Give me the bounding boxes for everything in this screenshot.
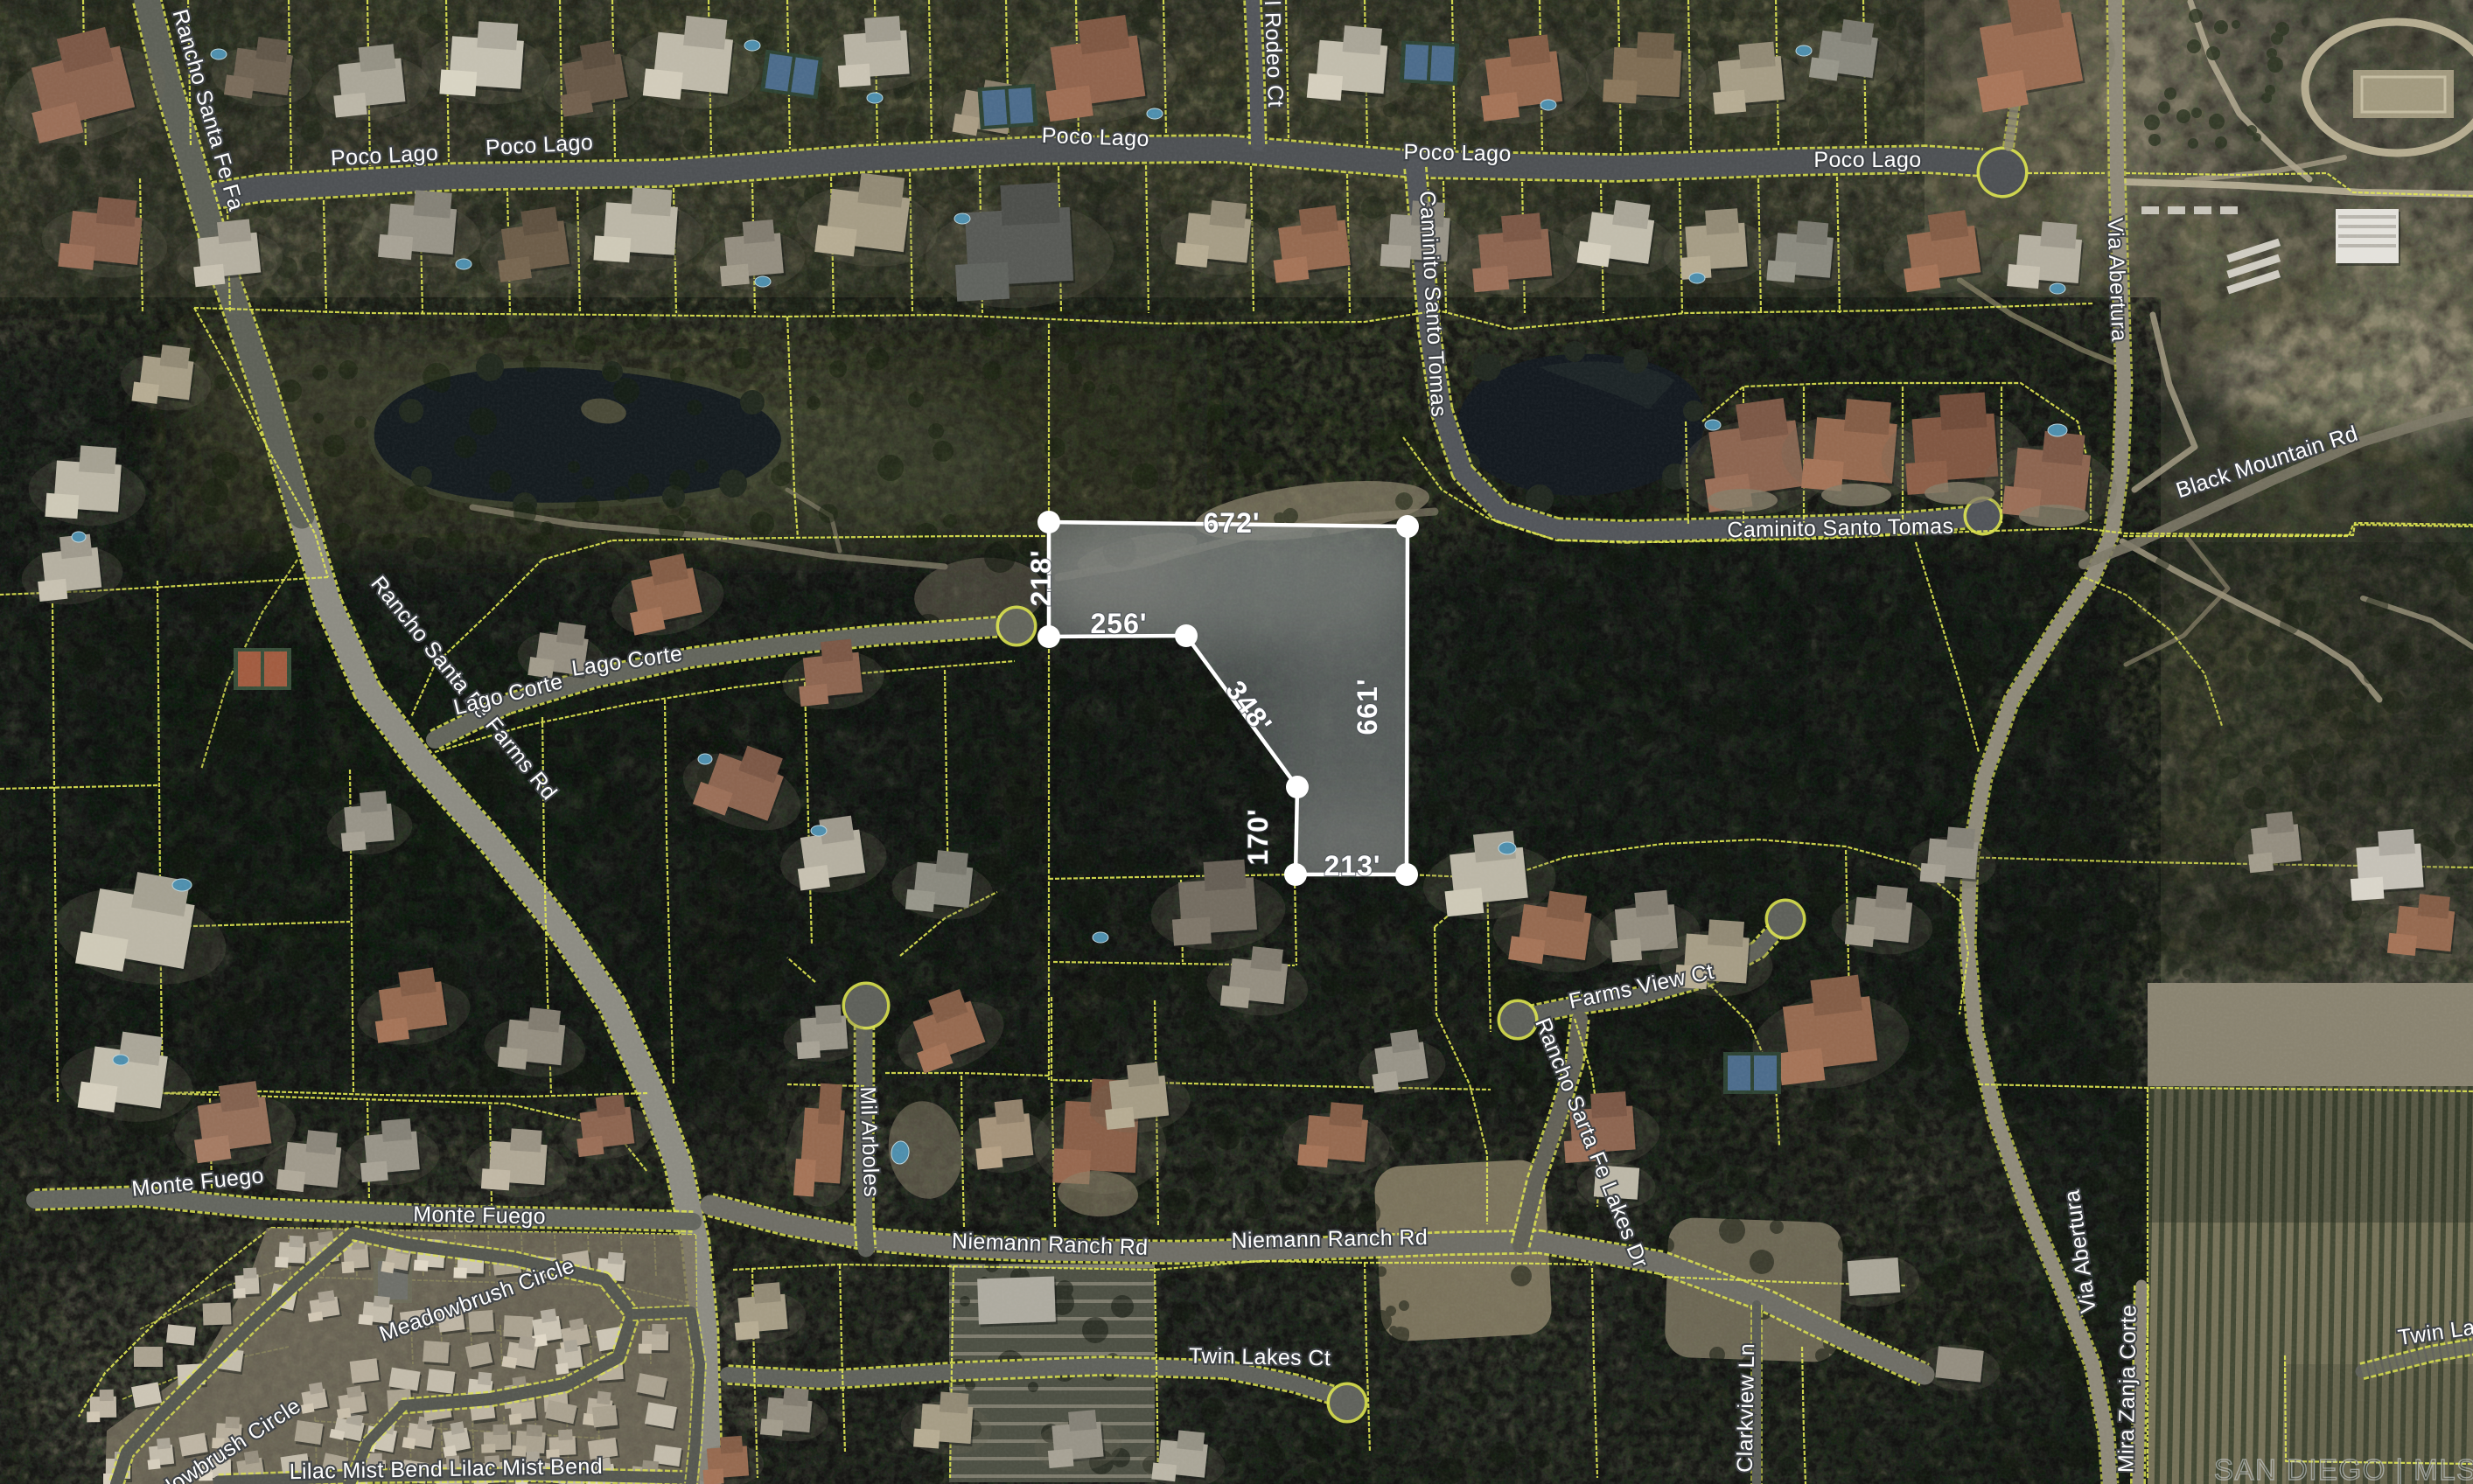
svg-text:SAN DIEGO | MLS: SAN DIEGO | MLS <box>2214 1453 2473 1484</box>
